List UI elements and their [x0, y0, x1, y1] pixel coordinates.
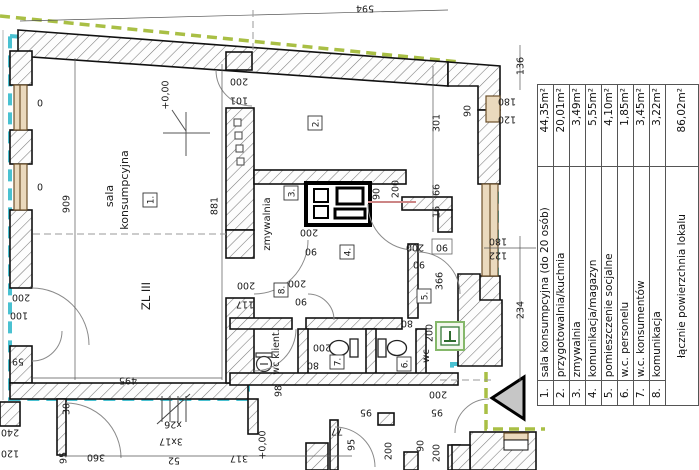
dim-label: 0 — [37, 99, 43, 110]
dim-label: 200 — [425, 324, 436, 342]
wall-ext-pier3 — [306, 443, 328, 470]
washbasin-icon — [256, 353, 272, 372]
window-notch — [504, 440, 528, 450]
svg-text:2.: 2. — [312, 119, 322, 128]
legend-row: 3. zmywalnia 3,49m² — [570, 85, 586, 406]
door-swing — [32, 331, 62, 361]
dim-label: 120 — [1, 448, 19, 459]
dim-label: 95 — [59, 452, 70, 464]
dim-label: 881 — [210, 197, 221, 215]
toilet-icon — [378, 339, 407, 357]
dim-label: 90 — [295, 296, 307, 307]
legend-room-area: 20,01m² — [554, 85, 570, 167]
dim-label: 200 — [406, 242, 424, 253]
dim-label: 90 — [463, 105, 474, 117]
dim-label: 495 — [119, 375, 137, 386]
dim-label: 180 — [498, 96, 516, 107]
room-name-sala-line2: konsumpcyjna — [118, 150, 131, 229]
dim-label: 52 — [168, 455, 180, 466]
legend-room-name: komunikacja/magazyn — [586, 167, 602, 381]
dim-label: 301 — [432, 114, 443, 132]
legend-room-name: sala konsumpcyjna (do 20 osób) — [538, 167, 554, 381]
dim-label: 16 — [432, 206, 443, 218]
wall-left-1 — [10, 51, 32, 85]
room-legend-table: 1. sala konsumpcyjna (do 20 osób) 44,35m… — [537, 84, 699, 406]
wall-ext-pier2 — [248, 399, 258, 434]
legend-total-row: łącznie powierzchnia lokalu 86,02m² — [666, 85, 699, 406]
legend-room-number: 6. — [618, 381, 634, 406]
dim-label: 200 — [288, 278, 306, 289]
dim-label: 909 — [62, 195, 73, 213]
legend-room-area: 44,35m² — [538, 85, 554, 167]
wall-cluster-bottom — [230, 373, 458, 385]
wall-ext-left — [0, 402, 20, 426]
dim-label: 100 — [10, 310, 28, 321]
wall-left-3 — [10, 210, 32, 288]
legend-room-area: 3,49m² — [570, 85, 586, 167]
legend-room-number: 5. — [602, 381, 618, 406]
room-name-wc: wc — [421, 349, 432, 363]
legend-row: 5. pomieszczenie socjalne 4,10m² — [602, 85, 618, 406]
legend-room-area: 3,45m² — [634, 85, 650, 167]
dim-label: 90 — [416, 440, 427, 452]
wall-wc-v1 — [298, 329, 308, 379]
legend-room-name: komunikacja — [650, 167, 666, 381]
dim-label: 77 — [331, 426, 343, 437]
room-name-zmywalnia: zmywalnia — [262, 197, 273, 250]
dim-label: 360 — [87, 452, 105, 463]
dim-label: x26 — [164, 419, 182, 430]
door-swing — [308, 294, 334, 320]
dim-label: 317 — [230, 453, 248, 464]
toilet-icon — [330, 339, 359, 357]
legend-room-area: 1,85m² — [618, 85, 634, 167]
wall-45 — [408, 244, 418, 318]
room-number-label: 6. — [397, 357, 411, 371]
legend-room-number: 4. — [586, 381, 602, 406]
dim-label: 200 — [313, 342, 331, 353]
wall-partition-s8-a — [226, 230, 254, 258]
dim-label: 95 — [431, 407, 443, 418]
wall-partition-s8-b — [226, 298, 254, 383]
fire-zone-label: ZL III — [139, 282, 153, 310]
svg-text:8.: 8. — [278, 286, 288, 295]
svg-text:6.: 6. — [401, 360, 411, 369]
level-label: +0,00 — [258, 430, 269, 459]
wall-ext-br-stub — [452, 445, 470, 470]
room-number-label: 3. — [284, 186, 298, 200]
dim-label: 200 — [429, 389, 447, 400]
dim-label: 59 — [12, 356, 24, 367]
window-sill-bottom — [504, 433, 528, 440]
door-swing — [455, 399, 489, 433]
room-number-label: 1. — [143, 193, 157, 207]
floor-plan-page: 1. 2. 3. 4. 5. 6. 7. 8. sala konsumpcyjn… — [0, 0, 699, 470]
legend-row: 4. komunikacja/magazyn 5,55m² — [586, 85, 602, 406]
dim-label: 90 — [436, 242, 448, 253]
dim-label: 66 — [432, 184, 443, 196]
room-number-label: 8. — [274, 283, 288, 297]
dim-label: 200 — [391, 180, 402, 198]
dim-label: 120 — [498, 114, 516, 125]
wall-left-2 — [10, 130, 32, 164]
dim-label: 234 — [516, 301, 527, 319]
dim-label: 200 — [237, 280, 255, 291]
legend-room-number: 2. — [554, 381, 570, 406]
wall-right-mid — [478, 276, 500, 302]
dim-label: 90 — [372, 188, 383, 200]
dim-label: 200 — [230, 76, 248, 87]
dim-label: 240 — [1, 427, 19, 438]
legend-room-number: 8. — [650, 381, 666, 406]
wall-ext-pier6 — [404, 452, 418, 470]
wall-ext-pier5 — [378, 413, 394, 425]
wall-wc-top-a — [230, 318, 292, 329]
legend-room-number: 1. — [538, 381, 554, 406]
svg-text:4.: 4. — [344, 248, 354, 257]
dim-label: 180 — [489, 236, 507, 247]
dim-label: 0 — [37, 183, 43, 194]
legend-row: 1. sala konsumpcyjna (do 20 osób) 44,35m… — [538, 85, 554, 406]
dim-label: 117 — [236, 299, 254, 310]
legend-room-area: 4,10m² — [602, 85, 618, 167]
room-number-label: 2. — [308, 116, 322, 130]
legend-row: 6. w.c. personelu 1,85m² — [618, 85, 634, 406]
svg-text:7.: 7. — [334, 358, 344, 367]
room-name-wc-klient: wc klient. — [271, 329, 282, 374]
room-number-label: 7. — [330, 355, 344, 369]
wall-t-horown — [402, 197, 452, 210]
dim-label: 594 — [356, 3, 374, 14]
dim-label: 30 — [62, 403, 73, 415]
wall-wc-top-b — [306, 318, 402, 329]
dim-label: 98 — [274, 385, 285, 397]
dim-label: 90 — [413, 259, 425, 270]
dim-label: 200 — [12, 292, 30, 303]
dim-label: 136 — [516, 57, 527, 75]
dim-label: 95 — [360, 407, 372, 418]
room-legend: 1. sala konsumpcyjna (do 20 osób) 44,35m… — [537, 84, 689, 406]
legend-room-area: 3,22m² — [650, 85, 666, 167]
room-name-sala-line1: sala — [103, 185, 116, 207]
sink-counter — [306, 183, 370, 225]
direction-arrow-icon — [492, 377, 524, 419]
dim-label: 95 — [347, 439, 358, 451]
legend-room-name: w.c. personelu — [618, 167, 634, 381]
legend-room-number: 3. — [570, 381, 586, 406]
dim-label: 101 — [230, 95, 248, 106]
dim-label: 366 — [435, 272, 446, 290]
dim-label: 3x17 — [159, 436, 183, 447]
dim-label: 200 — [300, 227, 318, 238]
window-right-top — [486, 96, 500, 122]
room-number-label: 5. — [417, 289, 431, 303]
legend-row: 2. przygotowalnia/kuchnia 20,01m² — [554, 85, 570, 406]
svg-text:3.: 3. — [288, 189, 298, 198]
legend-room-name: w.c. konsumentów — [634, 167, 650, 381]
legend-row: 8. komunikacja 3,22m² — [650, 85, 666, 406]
legend-row: 7. w.c. konsumentów 3,45m² — [634, 85, 650, 406]
legend-room-name: przygotowalnia/kuchnia — [554, 167, 570, 381]
dim-label: 90 — [305, 246, 317, 257]
wall-wc-v2 — [366, 329, 376, 379]
svg-text:1.: 1. — [147, 196, 157, 205]
dim-label: 80 — [307, 360, 319, 371]
legend-room-number: 7. — [634, 381, 650, 406]
dim-label: 122 — [489, 250, 507, 261]
dim-label: 80 — [401, 318, 413, 329]
dim-label: 200 — [384, 442, 395, 460]
level-marker-icon — [163, 110, 210, 156]
door-swing — [32, 288, 89, 345]
room-number-label: 4. — [340, 245, 354, 259]
legend-room-name: pomieszczenie socjalne — [602, 167, 618, 381]
svg-text:5.: 5. — [421, 292, 431, 301]
meter-box-icon — [436, 322, 464, 350]
legend-room-name: zmywalnia — [570, 167, 586, 381]
level-label: +0,00 — [161, 80, 172, 109]
door-swing — [66, 403, 121, 458]
dim-label: 200 — [432, 444, 443, 462]
legend-total-area: 86,02m² — [666, 85, 699, 167]
legend-total-name: łącznie powierzchnia lokalu — [666, 167, 699, 406]
wall-partition-12-top — [226, 52, 252, 70]
legend-room-area: 5,55m² — [586, 85, 602, 167]
